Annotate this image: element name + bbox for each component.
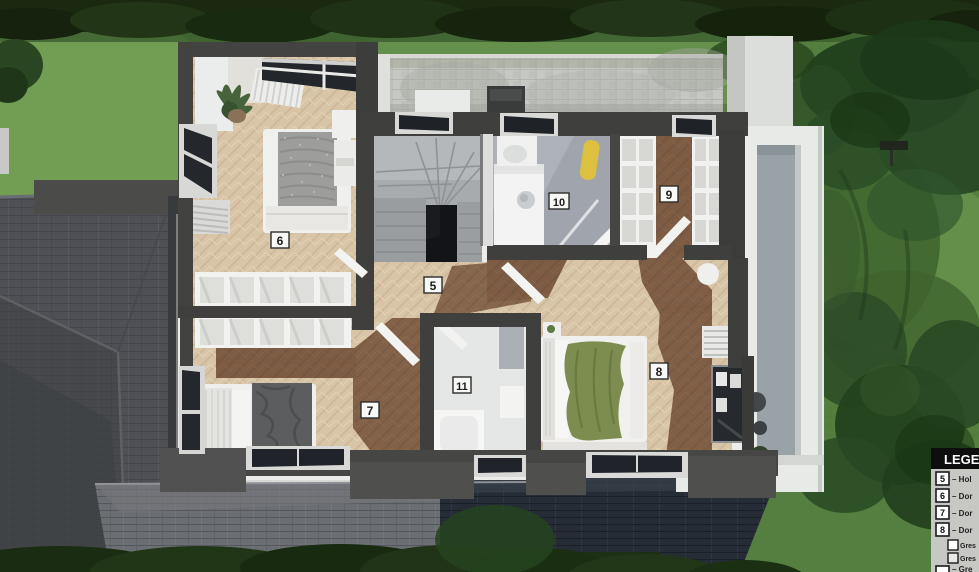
- svg-text:Gres: Gres: [960, 556, 976, 563]
- svg-text:– Dor: – Dor: [952, 492, 972, 501]
- svg-text:Gres: Gres: [960, 543, 976, 550]
- svg-text:8: 8: [656, 365, 663, 379]
- svg-text:– Dor: – Dor: [952, 509, 972, 518]
- svg-text:5: 5: [430, 279, 437, 293]
- svg-text:9: 9: [666, 188, 673, 202]
- svg-text:– Gre: – Gre: [952, 565, 973, 572]
- svg-text:10: 10: [553, 197, 565, 209]
- svg-text:7: 7: [367, 404, 374, 418]
- svg-text:6: 6: [277, 234, 284, 248]
- svg-text:11: 11: [456, 381, 468, 393]
- svg-text:7: 7: [940, 508, 945, 518]
- svg-text:5: 5: [940, 474, 945, 484]
- svg-text:6: 6: [940, 491, 945, 501]
- svg-text:LEGE: LEGE: [944, 452, 979, 467]
- svg-text:8: 8: [940, 525, 945, 535]
- svg-text:– Dor: – Dor: [952, 526, 972, 535]
- svg-text:– Hol: – Hol: [952, 475, 972, 484]
